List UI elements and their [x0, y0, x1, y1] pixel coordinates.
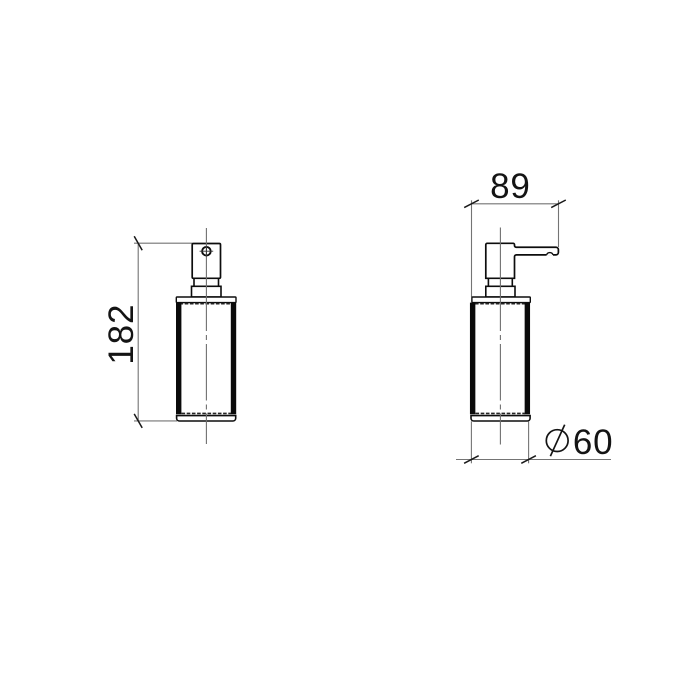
svg-text:60: 60 [573, 423, 614, 462]
svg-text:182: 182 [102, 304, 141, 365]
svg-text:89: 89 [490, 167, 531, 206]
